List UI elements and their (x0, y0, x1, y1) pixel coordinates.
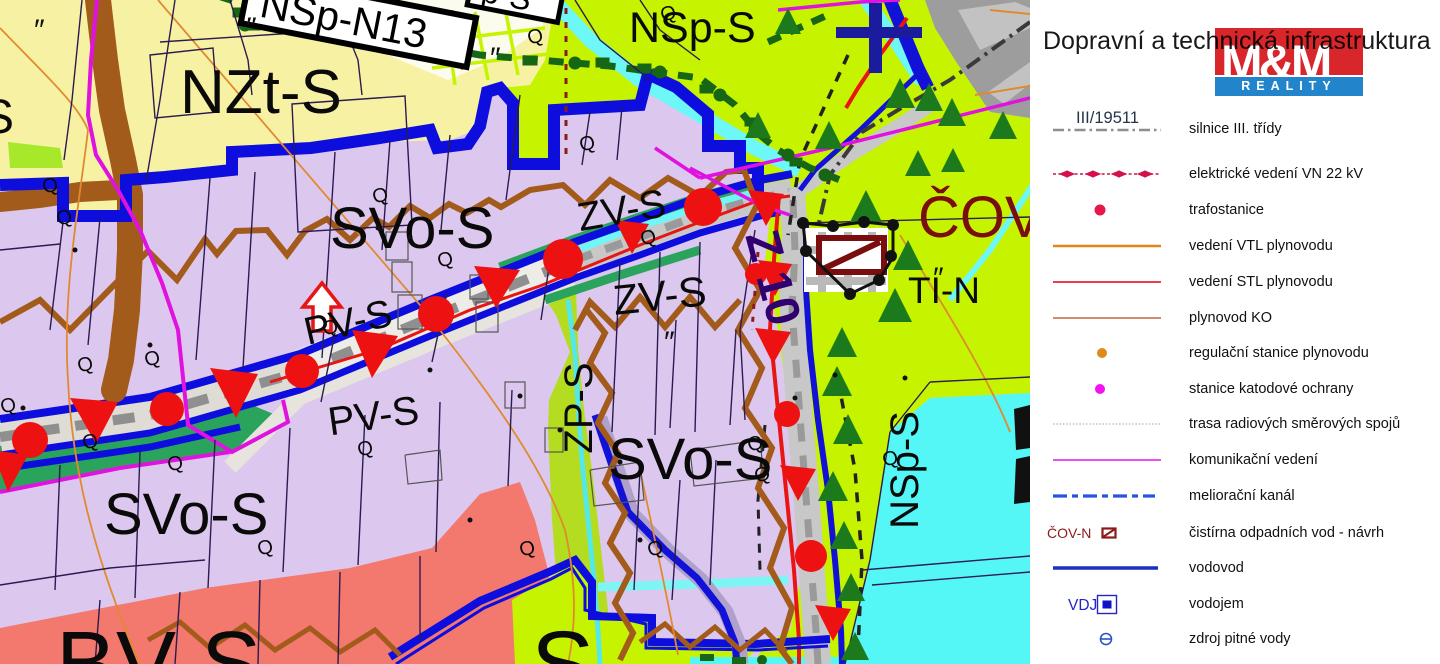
svg-text:TI-N: TI-N (908, 270, 980, 311)
svg-text:″: ″ (34, 14, 45, 47)
svg-text:S: S (0, 91, 14, 144)
svg-text:BV-S: BV-S (56, 614, 261, 664)
svg-text:ZV-S: ZV-S (611, 267, 709, 324)
svg-text:SVo-S: SVo-S (104, 482, 268, 547)
svg-text:″: ″ (664, 326, 675, 359)
svg-text:NZt-S: NZt-S (180, 58, 342, 127)
svg-text:ČOV-N: ČOV-N (1047, 525, 1091, 541)
svg-text:ZP-S: ZP-S (557, 362, 601, 453)
svg-text:SVo-S: SVo-S (330, 196, 494, 261)
svg-text:″: ″ (933, 262, 944, 295)
svg-text:VDJ: VDJ (1068, 597, 1097, 614)
svg-text:NSp-S: NSp-S (629, 4, 756, 52)
svg-text:″: ″ (490, 42, 501, 75)
svg-text:S: S (531, 612, 594, 664)
svg-text:″: ″ (246, 12, 257, 45)
svg-text:ČOV: ČOV (918, 185, 1030, 250)
svg-text:III/19511: III/19511 (1076, 109, 1139, 127)
